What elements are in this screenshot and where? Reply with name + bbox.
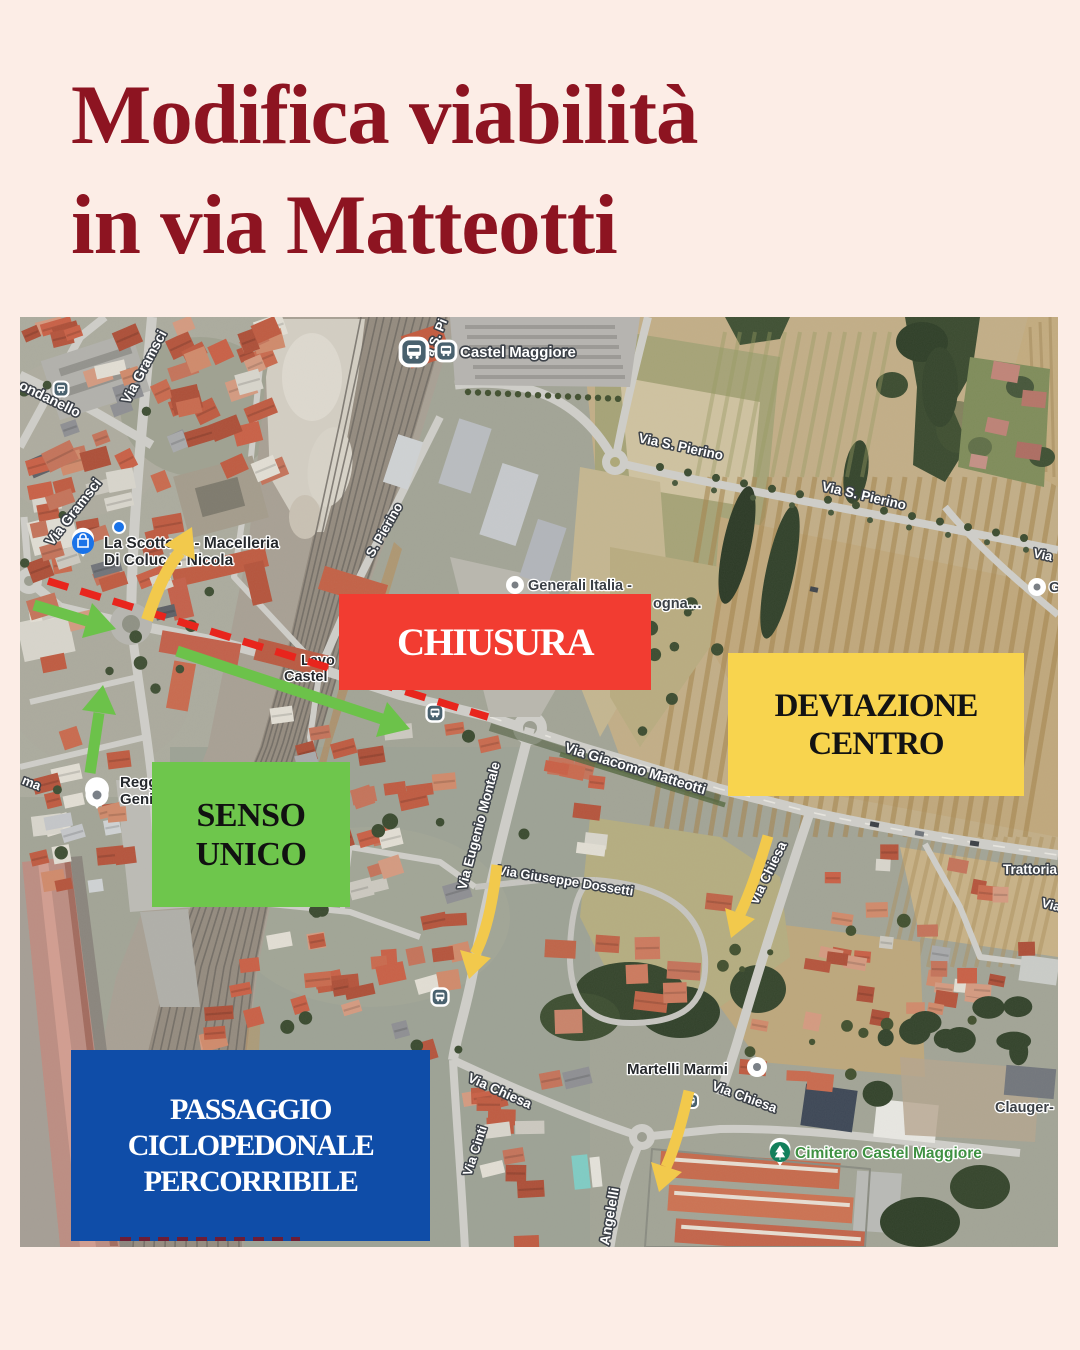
svg-text:Martelli Marmi: Martelli Marmi	[627, 1061, 728, 1078]
svg-text:Generali Italia -: Generali Italia -	[528, 578, 632, 594]
svg-text:Clauger-: Clauger-	[995, 1100, 1054, 1116]
svg-text:Trattoria: Trattoria	[1003, 862, 1058, 877]
svg-text:Castel: Castel	[284, 669, 328, 685]
svg-text:Geni: Geni	[120, 791, 153, 808]
svg-text:Ge: Ge	[1049, 580, 1058, 596]
svg-text:Castel Maggiore: Castel Maggiore	[460, 344, 576, 361]
svg-text:ogna…: ogna…	[653, 596, 702, 612]
svg-text:Cimitero Castel Maggiore: Cimitero Castel Maggiore	[795, 1145, 982, 1162]
